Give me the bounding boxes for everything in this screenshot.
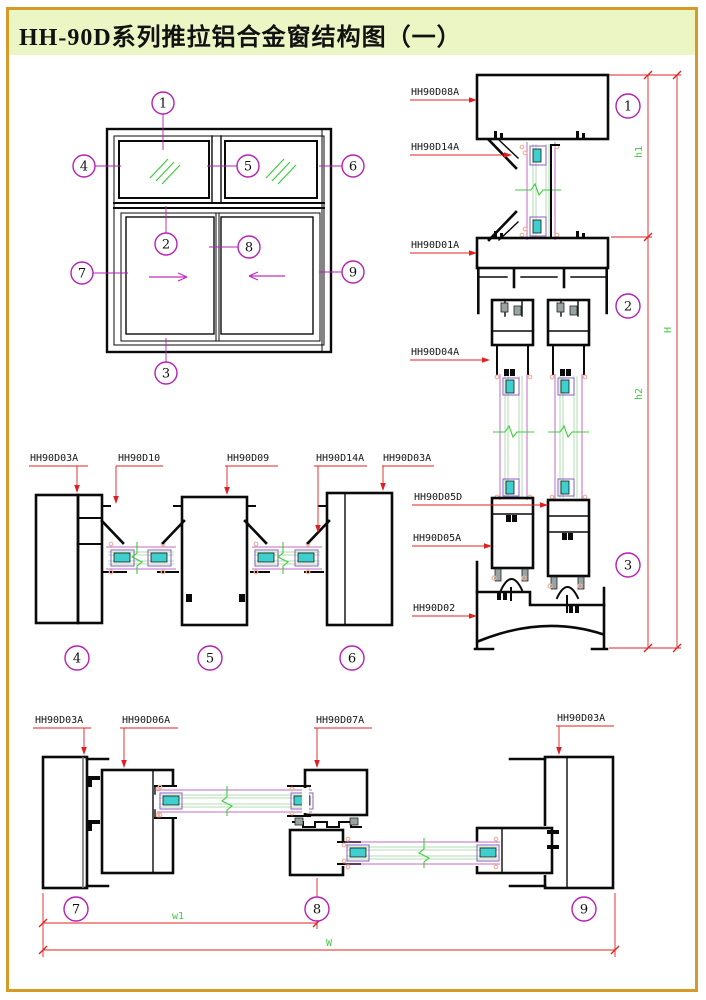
callout-1-number: 1 bbox=[159, 97, 167, 112]
dimension-W: W bbox=[326, 938, 333, 949]
bottomsection-callout-7: 7 bbox=[64, 897, 88, 921]
slide-direction-arrow-right bbox=[149, 273, 187, 281]
callout-4: 4 bbox=[73, 155, 95, 177]
bottomsection-dimensions: w1 W bbox=[39, 878, 619, 957]
sash-glass-units bbox=[493, 374, 589, 500]
profile-label-hh90d04a: HH90D04A bbox=[411, 347, 459, 358]
vsection-callout-3: 3 bbox=[616, 553, 640, 577]
fixed-glass-panels bbox=[119, 141, 317, 198]
mid-horizontal-section-diagram: HH90D03A HH90D10 HH90D09 HH90D14A HH90D0… bbox=[29, 453, 434, 670]
bottomsection-callout-8: 8 bbox=[305, 897, 329, 921]
profile-label-hh90d05a: HH90D05A bbox=[413, 533, 461, 544]
sliding-sash-panels bbox=[121, 213, 320, 341]
profile-label-hh90d01a: HH90D01A bbox=[411, 240, 459, 251]
callout-2-number: 2 bbox=[162, 238, 170, 253]
fixed-glass-unit bbox=[489, 142, 561, 240]
left-fixed-glass bbox=[106, 542, 176, 574]
vsection-callout-1-number: 1 bbox=[624, 100, 632, 115]
profile-label-hh90d10: HH90D10 bbox=[118, 453, 160, 464]
bottom-horizontal-section-diagram: HH90D03A HH90D06A HH90D07A HH90D03A w1 W… bbox=[33, 713, 619, 957]
midsection-callout-5-number: 5 bbox=[206, 652, 214, 667]
midsection-callout-4-number: 4 bbox=[73, 652, 81, 667]
profile-label-hh90d08a: HH90D08A bbox=[411, 87, 459, 98]
midsection-callout-6-number: 6 bbox=[348, 652, 356, 667]
profile-label-hh90d03a-left: HH90D03A bbox=[30, 453, 78, 464]
bottomsection-callout-8-number: 8 bbox=[313, 903, 321, 918]
profile-label-hh90d03a-bottomleft: HH90D03A bbox=[35, 715, 83, 726]
callout-5-number: 5 bbox=[244, 160, 252, 175]
bottomsection-callout-7-number: 7 bbox=[72, 903, 80, 918]
dimension-h2: h2 bbox=[634, 388, 645, 400]
profile-label-hh90d07a: HH90D07A bbox=[316, 715, 364, 726]
slide-direction-arrow-left bbox=[249, 272, 285, 280]
profile-label-hh90d05d: HH90D05D bbox=[414, 492, 462, 503]
right-frame-jamb bbox=[510, 757, 613, 888]
midsection-callout-4: 4 bbox=[65, 646, 89, 670]
callout-6-number: 6 bbox=[349, 160, 357, 175]
callout-9-number: 9 bbox=[349, 266, 357, 281]
dimension-h1: h1 bbox=[634, 146, 645, 158]
callout-9: 9 bbox=[342, 261, 364, 283]
callout-4-number: 4 bbox=[80, 160, 88, 175]
callout-1: 1 bbox=[152, 92, 174, 114]
profile-label-hh90d03a-bottomright: HH90D03A bbox=[557, 713, 605, 724]
midsection-callout-6: 6 bbox=[340, 646, 364, 670]
bottomsection-callout-9: 9 bbox=[572, 897, 596, 921]
midsection-callout-5: 5 bbox=[198, 646, 222, 670]
head-frame-profile bbox=[477, 75, 608, 168]
callout-8-number: 8 bbox=[245, 241, 253, 256]
profile-label-hh90d02: HH90D02 bbox=[413, 603, 455, 614]
callout-3: 3 bbox=[155, 362, 177, 384]
sash-top-profiles bbox=[492, 300, 589, 376]
bottomsection-callout-9-number: 9 bbox=[580, 903, 588, 918]
profile-label-hh90d03a-right: HH90D03A bbox=[383, 453, 431, 464]
right-glass-band bbox=[345, 837, 500, 869]
right-fixed-glass bbox=[252, 542, 322, 574]
callout-3-number: 3 bbox=[162, 367, 170, 382]
profile-label-hh90d14a: HH90D14A bbox=[411, 142, 459, 153]
left-sliding-sash-profile bbox=[102, 770, 177, 873]
vsection-callout-2: 2 bbox=[616, 294, 640, 318]
left-glass-band bbox=[157, 785, 313, 817]
drawing-sheet: HH-90D系列推拉铝合金窗结构图（一） bbox=[0, 0, 706, 1000]
vsection-callout-2-number: 2 bbox=[624, 300, 632, 315]
callout-6: 6 bbox=[342, 155, 364, 177]
technical-drawing: 1 2 3 4 5 6 7 8 9 bbox=[0, 0, 706, 1000]
callout-8: 8 bbox=[238, 236, 260, 258]
vertical-section-diagram: HH90D08A HH90D14A HH90D01A HH90D04A HH90… bbox=[410, 71, 681, 652]
vsection-callout-3-number: 3 bbox=[624, 559, 632, 574]
callout-5: 5 bbox=[237, 155, 259, 177]
window-elevation-diagram: 1 2 3 4 5 6 7 8 9 bbox=[71, 92, 364, 384]
right-jamb-profile bbox=[308, 493, 392, 625]
left-frame-jamb bbox=[43, 757, 108, 888]
dimension-H: H bbox=[663, 327, 674, 333]
profile-label-hh90d14a-mid: HH90D14A bbox=[316, 453, 364, 464]
dimension-w1: w1 bbox=[172, 911, 184, 922]
profile-label-hh90d09: HH90D09 bbox=[227, 453, 269, 464]
profile-label-hh90d06a: HH90D06A bbox=[122, 715, 170, 726]
callout-2: 2 bbox=[155, 233, 177, 255]
callout-7: 7 bbox=[71, 262, 93, 284]
callout-7-number: 7 bbox=[78, 267, 86, 282]
vsection-callout-1: 1 bbox=[616, 94, 640, 118]
